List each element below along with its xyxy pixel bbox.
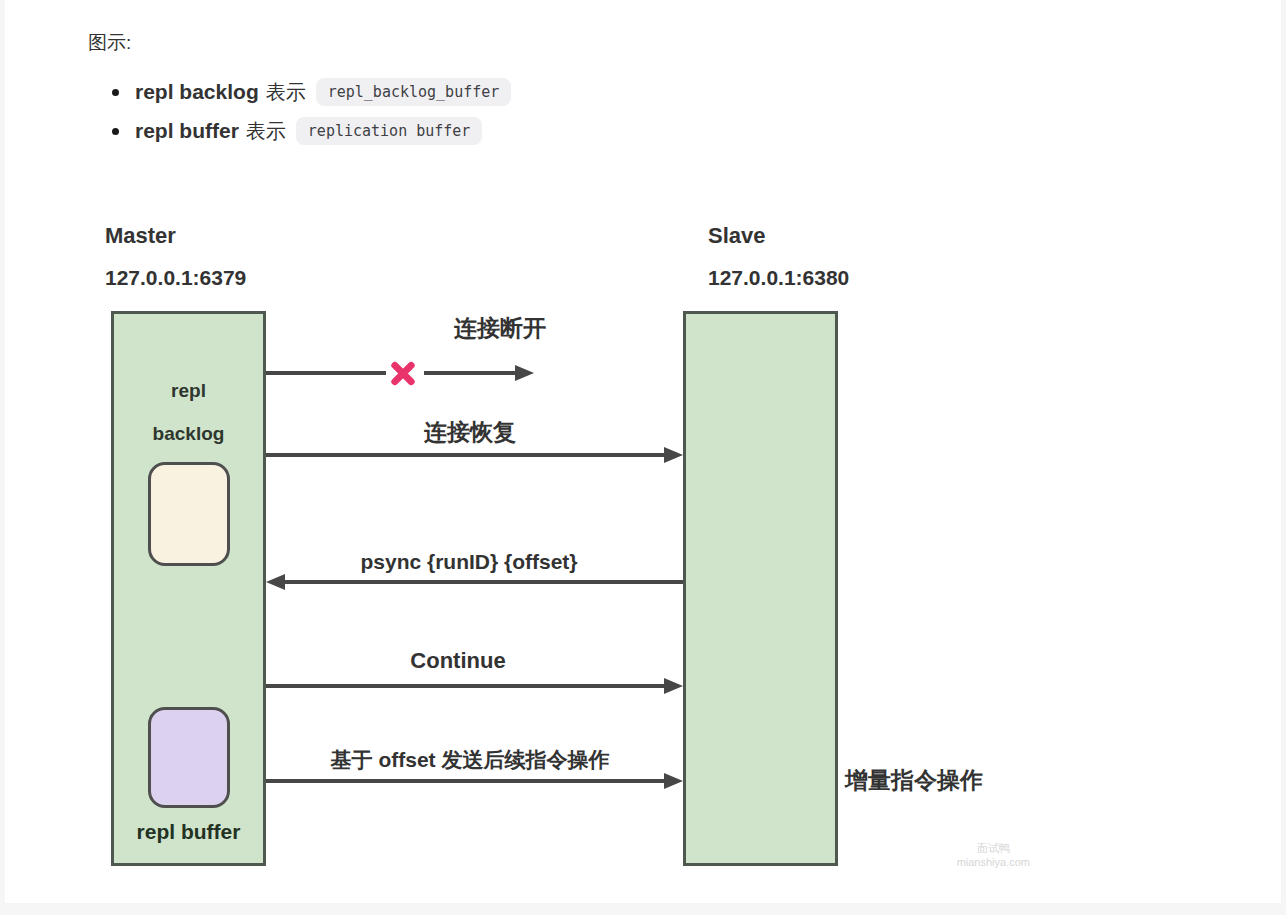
legend-term: repl buffer [135, 119, 239, 143]
arrow-reconnect-head-icon [664, 447, 683, 463]
slave-address: 127.0.0.1:6380 [708, 266, 849, 290]
arrow-psync-line [284, 580, 683, 584]
arrow-disconnect-segment1 [266, 371, 386, 375]
slave-node [683, 311, 838, 866]
arrow-disconnect-segment2 [424, 371, 516, 375]
bullet-icon [112, 128, 119, 135]
master-title: Master [105, 223, 176, 249]
figure-caption: 图示: [88, 30, 131, 56]
repl-buffer-label: repl buffer [114, 820, 263, 844]
repl-backlog-buffer-box [148, 462, 230, 566]
legend-item-repl-backlog: repl backlog 表示 repl_backlog_buffer [112, 78, 511, 106]
legend-middle-text: 表示 [246, 118, 286, 145]
message-label-psync: psync {runID} {offset} [338, 550, 600, 574]
page: 图示: repl backlog 表示 repl_backlog_buffer … [0, 0, 1286, 915]
bullet-icon [112, 89, 119, 96]
legend-item-repl-buffer: repl buffer 表示 replication buffer [112, 117, 482, 145]
arrow-psync-head-icon [266, 574, 285, 590]
page-edge-right [1281, 0, 1286, 915]
arrow-reconnect-line [266, 453, 666, 457]
message-label-disconnect: 连接断开 [430, 313, 570, 344]
master-node: repl backlog repl buffer [111, 311, 266, 866]
message-label-reconnect: 连接恢复 [400, 417, 540, 448]
arrow-offset-commands-line [266, 779, 666, 783]
legend-code-chip: replication buffer [296, 117, 483, 145]
incremental-commands-note: 增量指令操作 [845, 765, 983, 796]
page-edge-bottom [0, 903, 1286, 915]
message-label-continue: Continue [398, 648, 518, 674]
arrow-offset-commands-head-icon [664, 773, 683, 789]
arrow-continue-line [266, 684, 666, 688]
master-address: 127.0.0.1:6379 [105, 266, 246, 290]
replication-buffer-box [148, 707, 230, 808]
page-edge-left [0, 0, 5, 915]
slave-title: Slave [708, 223, 766, 249]
legend-code-chip: repl_backlog_buffer [316, 78, 512, 106]
message-label-offset-commands: 基于 offset 发送后续指令操作 [295, 746, 645, 774]
arrow-continue-head-icon [664, 678, 683, 694]
repl-backlog-label-line2: backlog [114, 423, 263, 445]
repl-backlog-label-line1: repl [114, 380, 263, 402]
watermark-url: mianshiya.com [900, 855, 1030, 869]
watermark-name: 面试鸭 [900, 841, 1010, 855]
legend-middle-text: 表示 [266, 79, 306, 106]
legend-term: repl backlog [135, 80, 259, 104]
arrow-disconnect-head-icon [515, 365, 534, 381]
broken-connection-x-icon [387, 357, 419, 389]
